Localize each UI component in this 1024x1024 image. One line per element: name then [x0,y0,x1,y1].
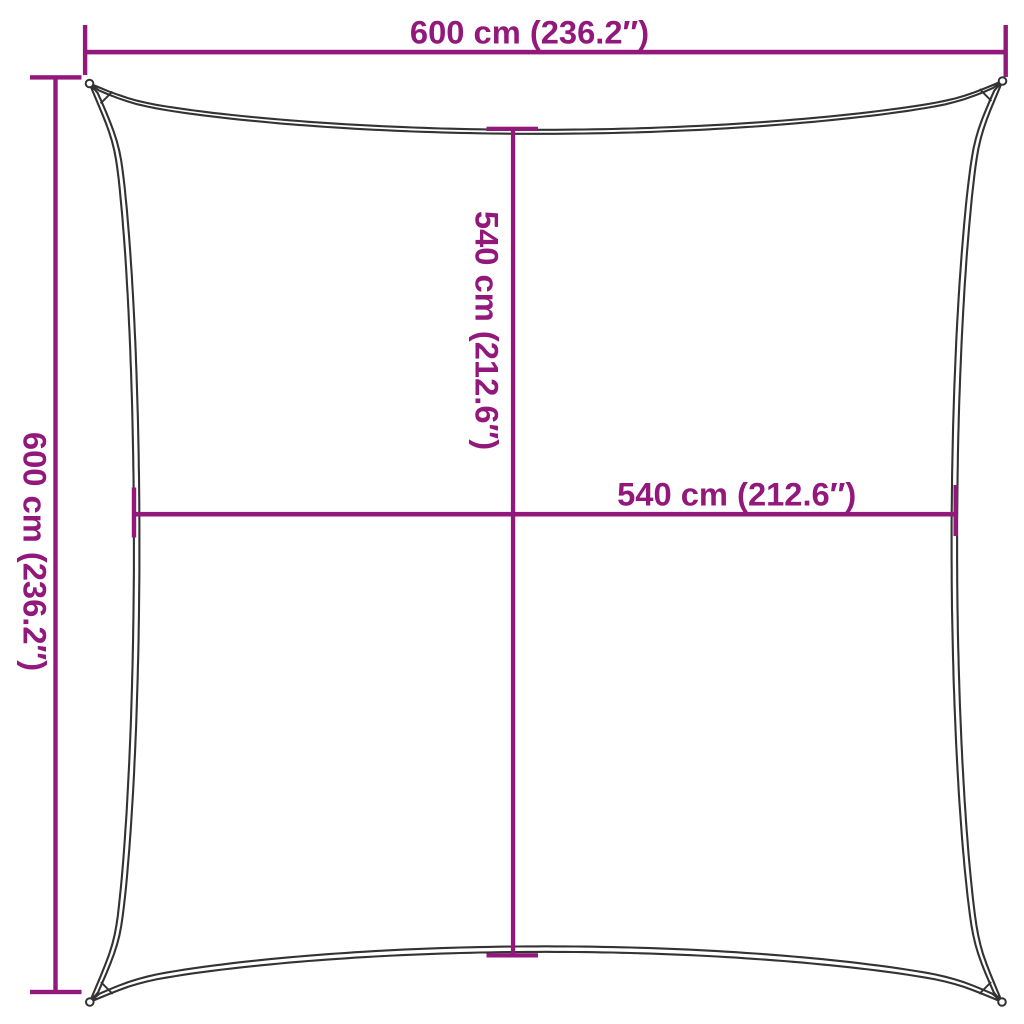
svg-text:540 cm (212.6″): 540 cm (212.6″) [617,476,856,513]
svg-text:600 cm (236.2″): 600 cm (236.2″) [410,13,649,50]
svg-text:540 cm (212.6″): 540 cm (212.6″) [469,211,506,450]
svg-text:600 cm (236.2″): 600 cm (236.2″) [17,432,54,671]
